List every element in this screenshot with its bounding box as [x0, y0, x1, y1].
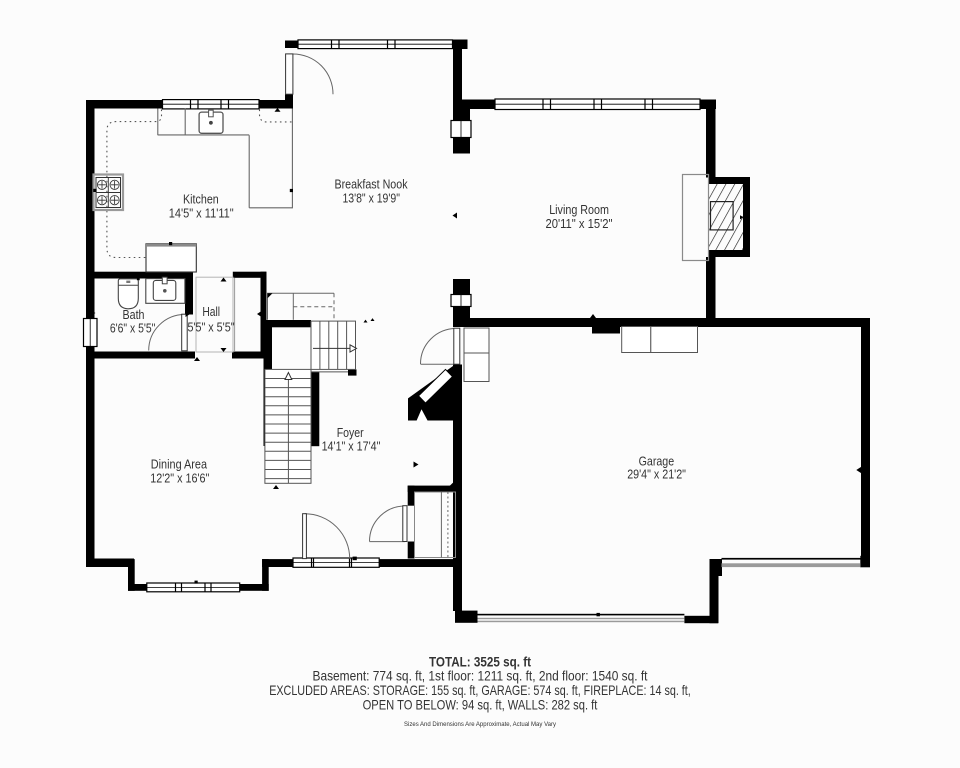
svg-text:5'5" x 5'5": 5'5" x 5'5" — [187, 321, 234, 335]
svg-text:Sizes And Dimensions Are Appro: Sizes And Dimensions Are Approximate, Ac… — [404, 721, 557, 728]
svg-text:Hall: Hall — [202, 304, 220, 319]
svg-text:14'5" x 11'11": 14'5" x 11'11" — [169, 207, 234, 221]
svg-text:Breakfast Nook: Breakfast Nook — [334, 177, 408, 192]
svg-text:20'11" x 15'2": 20'11" x 15'2" — [545, 217, 612, 231]
svg-text:Living Room: Living Room — [549, 202, 609, 217]
svg-text:6'6" x 5'5": 6'6" x 5'5" — [110, 322, 156, 336]
svg-text:Garage: Garage — [639, 453, 675, 468]
svg-text:OPEN TO BELOW: 94 sq. ft, WALL: OPEN TO BELOW: 94 sq. ft, WALLS: 282 sq.… — [363, 696, 598, 712]
svg-text:Dining Area: Dining Area — [151, 456, 208, 471]
svg-text:Kitchen: Kitchen — [183, 192, 219, 207]
svg-text:14'1" x 17'4": 14'1" x 17'4" — [322, 440, 381, 454]
svg-text:29'4" x 21'2": 29'4" x 21'2" — [627, 467, 686, 481]
svg-text:Bath: Bath — [123, 307, 145, 322]
svg-text:12'2" x 16'6": 12'2" x 16'6" — [150, 471, 209, 485]
svg-text:Foyer: Foyer — [337, 425, 365, 440]
svg-text:13'8" x 19'9": 13'8" x 19'9" — [342, 192, 400, 206]
